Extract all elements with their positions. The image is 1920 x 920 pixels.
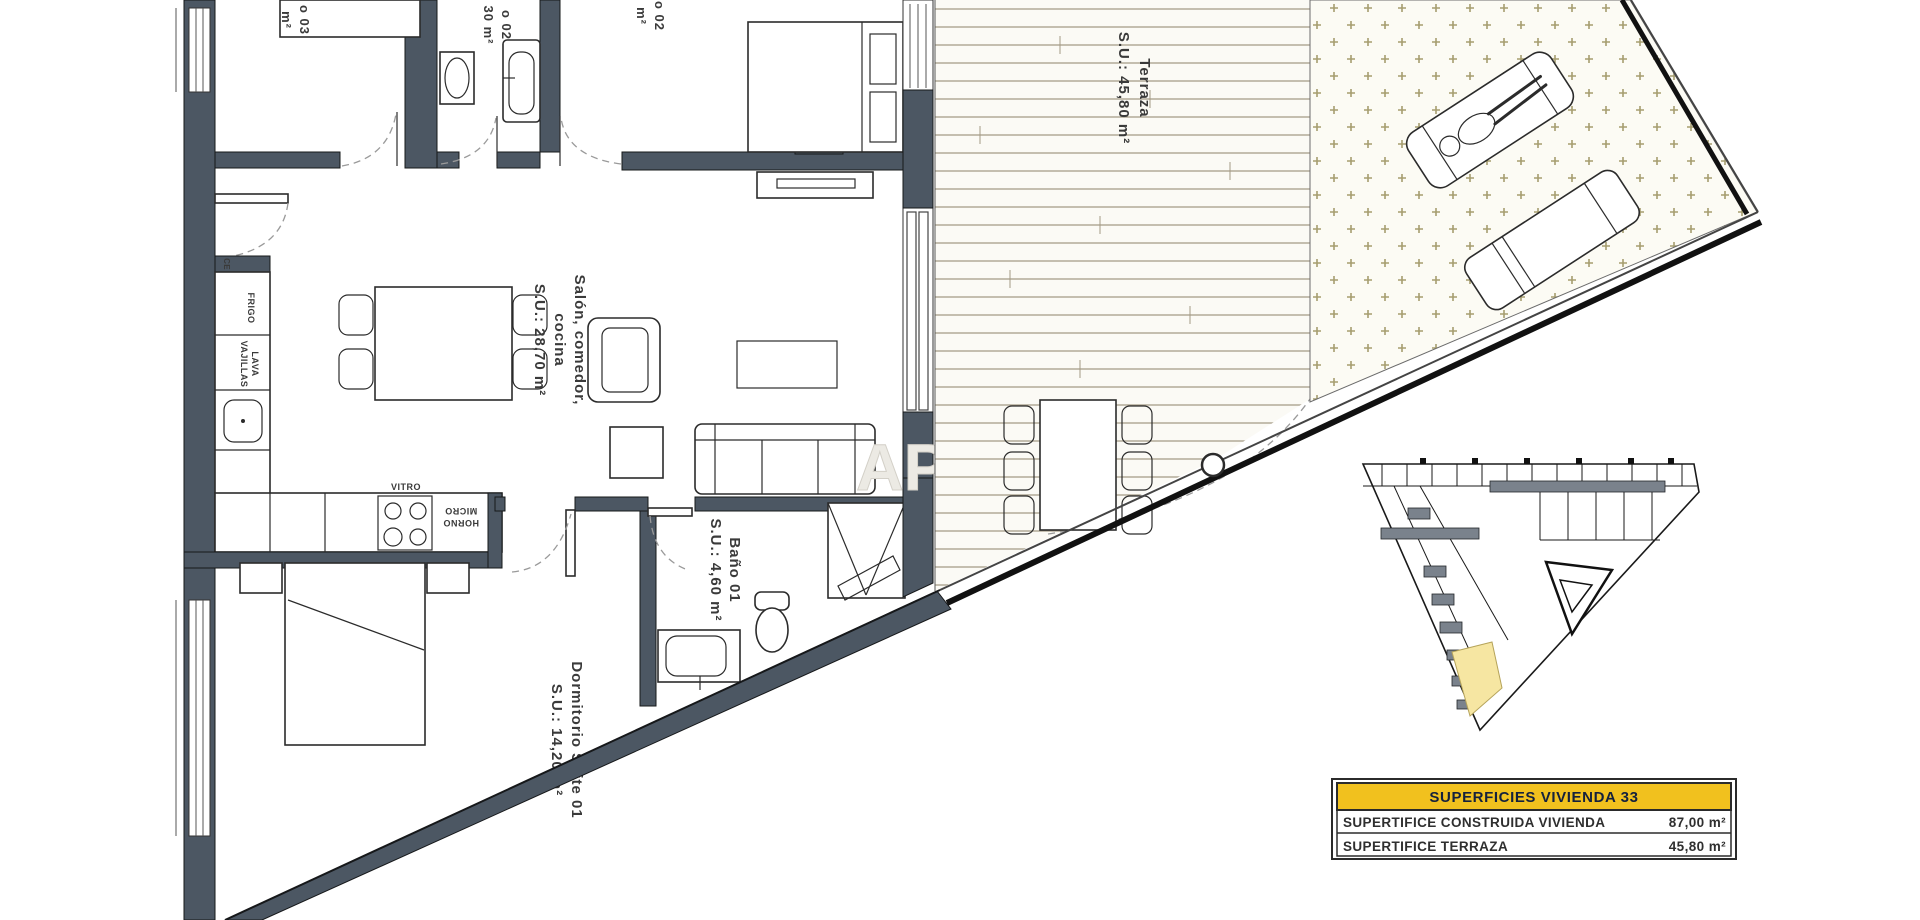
- bedroom-03-area: m²: [279, 11, 294, 29]
- watermark-text: AP: [856, 430, 948, 504]
- suite-door-leaf: [566, 510, 575, 576]
- coffee-table: [610, 427, 663, 478]
- floor-plan-drawing: o 03 m² o 02 30 m² o 02 m²: [0, 0, 1920, 920]
- nightstand: [240, 563, 282, 593]
- boundary-column: [1202, 454, 1224, 476]
- row-value: 45,80 m²: [1669, 839, 1726, 854]
- row-label: SUPERTIFICE CONSTRUIDA VIVIENDA: [1343, 815, 1605, 830]
- table-header-text: SUPERFICIES VIVIENDA 33: [1429, 789, 1638, 806]
- dishwasher-label-1: LAVA: [250, 351, 260, 376]
- table-row-built-surface: SUPERTIFICE CONSTRUIDA VIVIENDA 87,00 m²: [1343, 815, 1726, 830]
- bedroom-02-area: m²: [634, 7, 649, 25]
- outdoor-table: [1040, 400, 1116, 530]
- entrance-door-leaf: [215, 194, 288, 203]
- dishwasher-label-2: VAJILLAS: [239, 341, 249, 388]
- nightstand: [427, 563, 469, 593]
- row-label: SUPERTIFICE TERRAZA: [1343, 839, 1508, 854]
- terrace-facade-wall: [903, 0, 933, 597]
- terrace-label: Terraza: [1136, 58, 1153, 117]
- bedroom-03-label: o 03: [297, 5, 312, 35]
- bathroom-02-area: 30 m²: [481, 6, 496, 45]
- bedroom-02-label: o 02: [652, 1, 667, 31]
- micro-label: MICRO: [445, 506, 478, 516]
- suite-bed: [285, 563, 425, 745]
- surface-summary-table: SUPERFICIES VIVIENDA 33 SUPERTIFICE CONS…: [1332, 779, 1736, 859]
- terrace-area: S.U.: 45,80 m²: [1115, 32, 1132, 144]
- floor-plan-page: o 03 m² o 02 30 m² o 02 m²: [0, 0, 1920, 920]
- living-room-label-1: Salón, comedor,: [571, 275, 588, 406]
- living-room-area: S.U.: 28,70 m²: [531, 284, 548, 396]
- fridge-label: FRIGO: [246, 293, 256, 324]
- bathroom-01-door-leaf: [648, 508, 692, 516]
- washbasin: [658, 630, 740, 690]
- bathroom-01-area: S.U.: 4,60 m²: [707, 518, 724, 621]
- ce-label: CE: [222, 258, 231, 270]
- vitro-label: VITRO: [391, 482, 421, 492]
- living-room-label-2: cocina: [551, 313, 568, 367]
- bedroom-03: o 03 m²: [279, 0, 420, 37]
- kitchen-bottom-counter: VITRO HORNO MICRO: [184, 482, 502, 568]
- armchair: [588, 318, 660, 402]
- bathroom-01-label: Baño 01: [726, 537, 743, 602]
- sofa: [695, 424, 875, 494]
- bathroom-02-label: o 02: [499, 10, 514, 40]
- suite-label: Dormitorio Suite 01: [568, 661, 585, 818]
- row-value: 87,00 m²: [1669, 815, 1726, 830]
- dining-table: [375, 287, 512, 400]
- oven-label: HORNO: [443, 518, 479, 528]
- shower: [828, 503, 905, 600]
